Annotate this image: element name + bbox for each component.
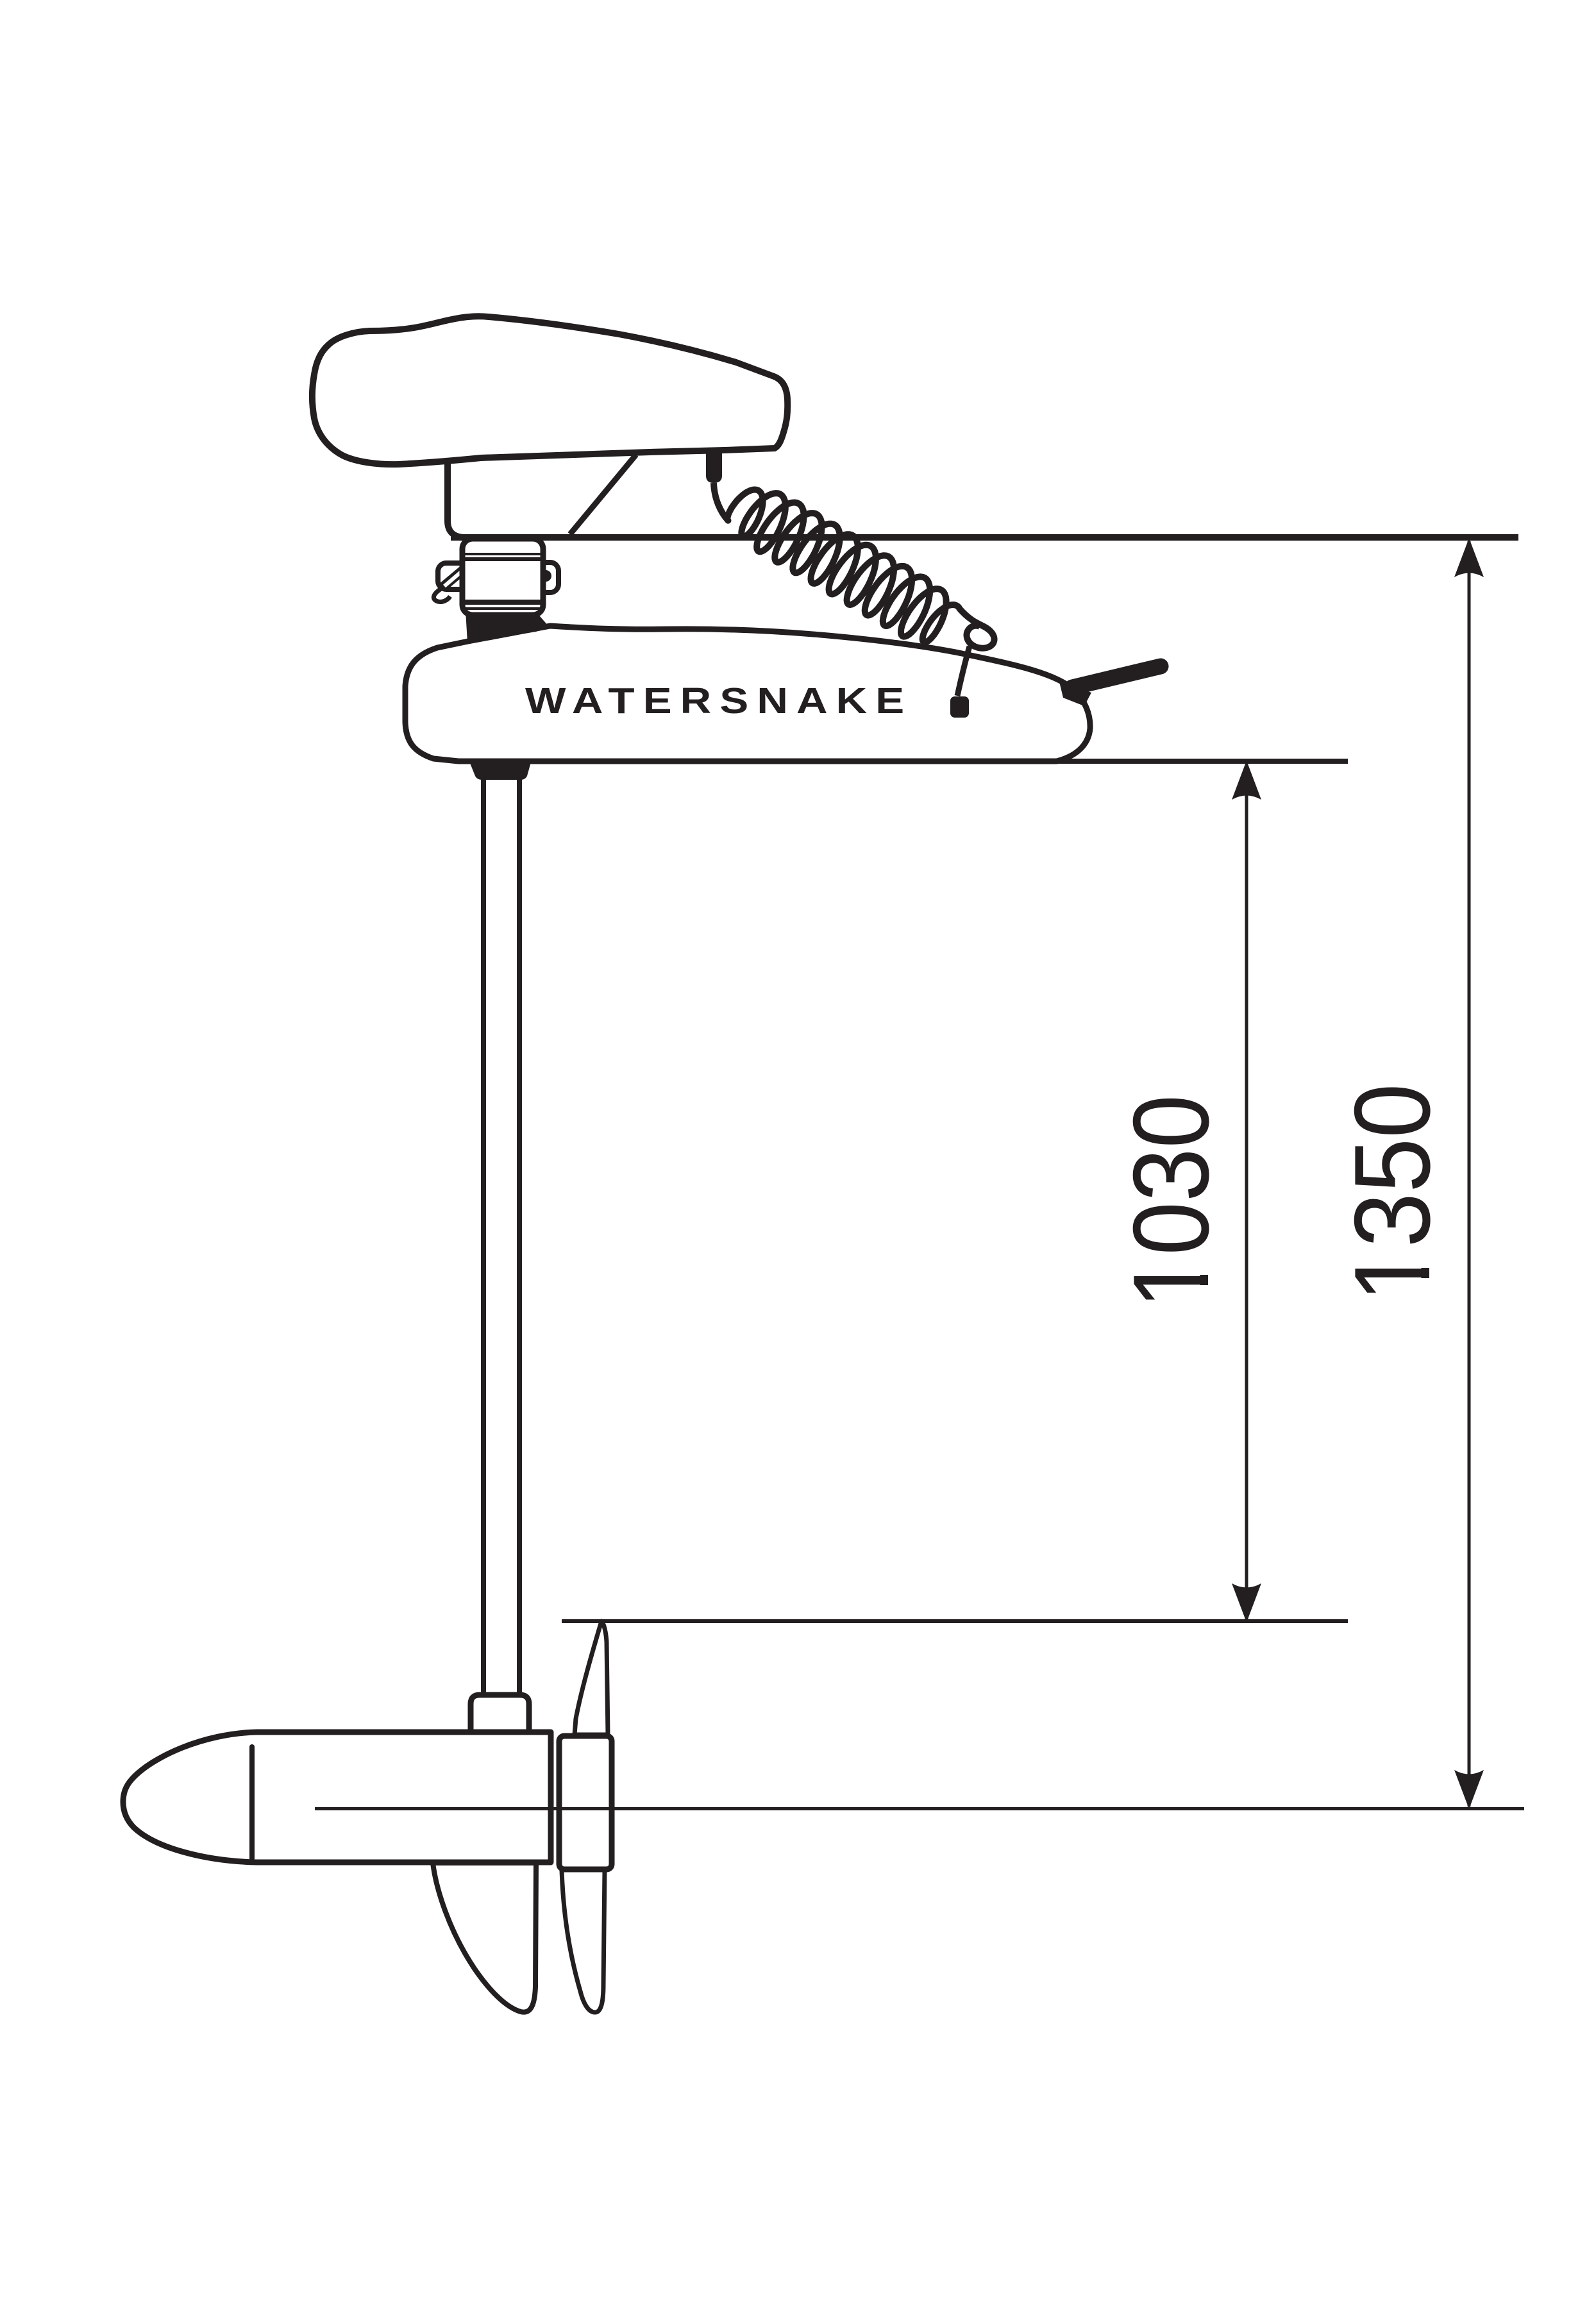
svg-text:1350: 1350 (1332, 1084, 1452, 1302)
svg-text:1030: 1030 (1111, 1095, 1231, 1309)
